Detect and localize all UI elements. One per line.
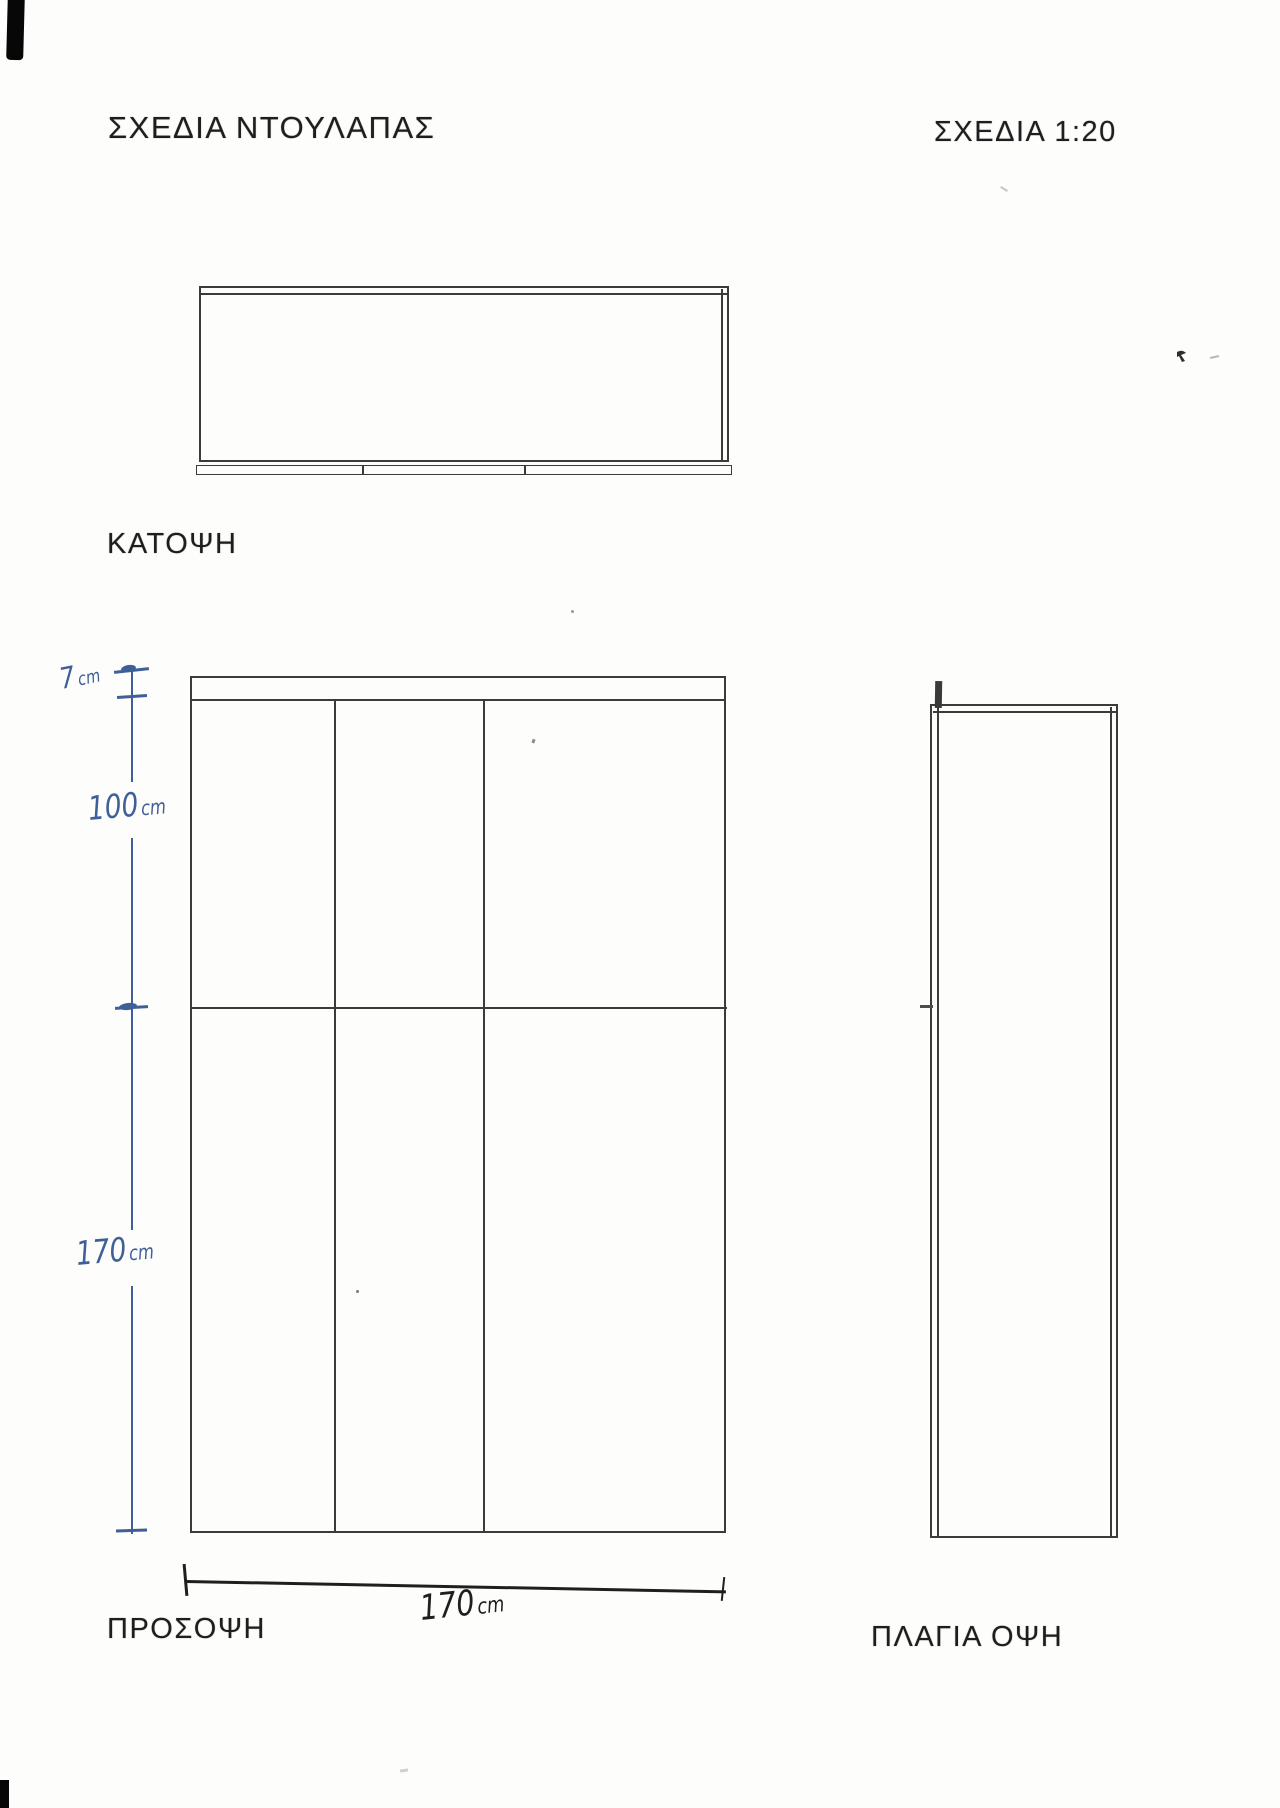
- dim-top-thickness-label: 7cm: [57, 655, 103, 696]
- plan-view-right-edge-line: [721, 289, 723, 460]
- dim-width-label: 170cm: [418, 1580, 506, 1629]
- side-view-top-edge-line: [933, 711, 1116, 713]
- plan-view-label: ΚΑΤΟΨΗ: [107, 528, 237, 561]
- side-view-outline: [930, 704, 1118, 1538]
- side-view-left-panel-line: [937, 707, 939, 1536]
- ink-squiggle-mark: [1176, 348, 1196, 366]
- front-view-shelf-line: [191, 1007, 727, 1009]
- vertical-dimension-line-segment: [131, 838, 133, 1230]
- ink-tick-mark: [1000, 186, 1008, 192]
- scan-artifact-bottom-left: [0, 1780, 9, 1808]
- dim-lower-height-label: 170cm: [74, 1227, 155, 1273]
- plan-view-outline: [199, 286, 729, 462]
- ink-dash-mark: [1210, 355, 1219, 359]
- front-view-label: ΠΡΟΣΟΨΗ: [107, 1613, 266, 1646]
- vertical-dimension-line-segment: [131, 668, 133, 782]
- drawing-sheet: ΣΧΕΔΙΑ ΝΤΟΥΛΑΠΑΣ ΣΧΕΔΙΑ 1:20 ΚΑΤΟΨΗ ΠΡΟΣ…: [0, 0, 1280, 1808]
- front-view-top-rail-line: [192, 699, 725, 701]
- paper-speck: [400, 1768, 408, 1772]
- side-view-label: ΠΛΑΓΙΑ ΟΨΗ: [871, 1621, 1063, 1654]
- front-view-door-divider-left: [334, 700, 336, 1532]
- dimension-tick: [116, 1528, 147, 1532]
- scan-artifact-top-left: [6, 0, 25, 60]
- plan-view-top-edge-line: [201, 293, 727, 295]
- side-view-top-pin: [935, 681, 942, 708]
- side-view-right-panel-line: [1110, 707, 1112, 1536]
- dim-upper-height-label: 100cm: [86, 782, 167, 828]
- vertical-dimension-line-segment: [131, 1286, 133, 1534]
- paper-speck: [571, 610, 574, 613]
- scale-label: ΣΧΕΔΙΑ 1:20: [934, 116, 1117, 149]
- front-view-door-divider-right: [483, 700, 485, 1532]
- door-strip-divider: [362, 466, 364, 474]
- page-title: ΣΧΕΔΙΑ ΝΤΟΥΛΑΠΑΣ: [108, 110, 435, 146]
- width-dimension-tick-right: [721, 1577, 726, 1601]
- door-strip-divider: [524, 466, 526, 474]
- plan-view-door-strip: [196, 465, 732, 475]
- front-view-outline: [190, 676, 726, 1533]
- dimension-tick-blob: [119, 1002, 138, 1011]
- side-view-shelf-tick: [920, 1005, 933, 1008]
